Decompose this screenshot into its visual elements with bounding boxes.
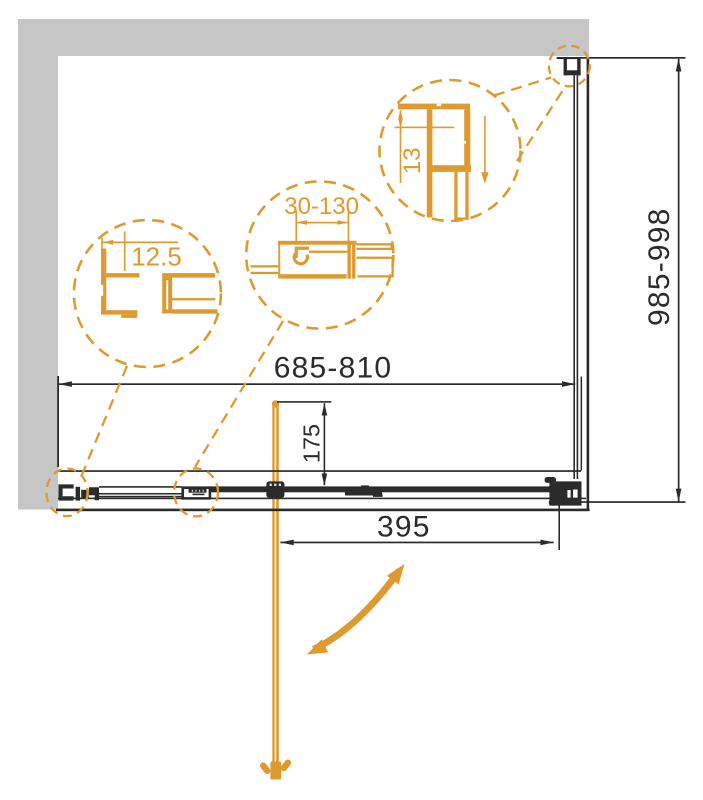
svg-text:985-998: 985-998 [643, 207, 676, 326]
svg-text:13: 13 [399, 147, 426, 174]
svg-text:685-810: 685-810 [274, 352, 393, 385]
svg-text:12.5: 12.5 [131, 242, 182, 272]
svg-text:30-130: 30-130 [284, 193, 359, 220]
svg-text:175: 175 [299, 424, 325, 463]
svg-text:395: 395 [377, 511, 431, 544]
